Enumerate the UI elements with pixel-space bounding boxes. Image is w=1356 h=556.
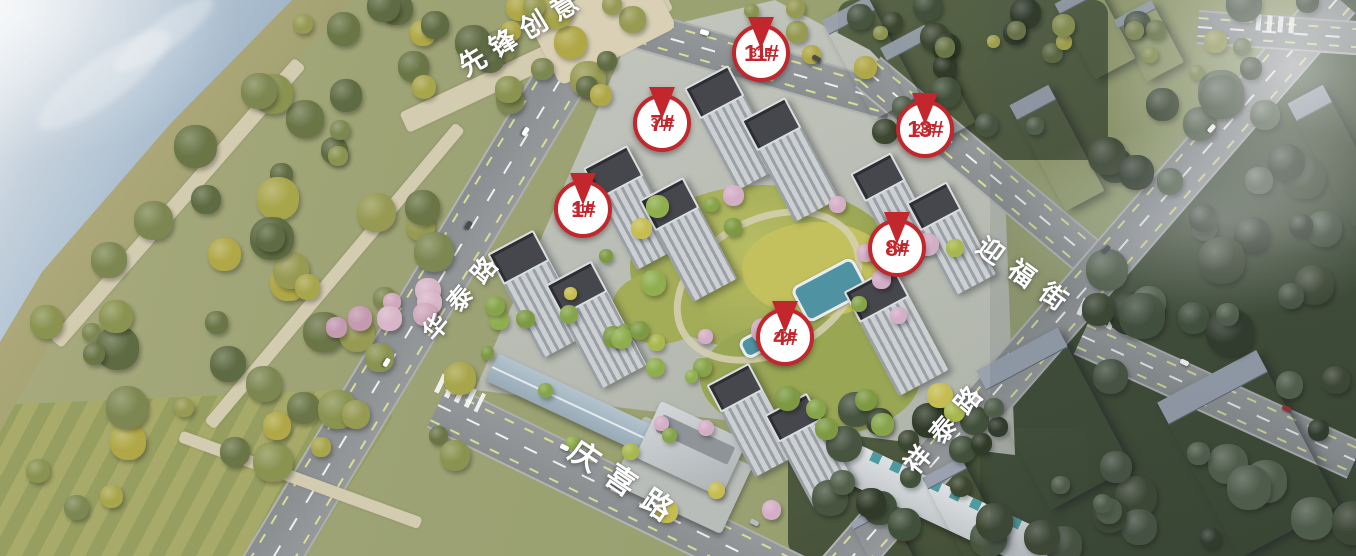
tree: [847, 4, 873, 30]
tree: [1240, 57, 1263, 80]
tree: [631, 218, 652, 239]
pin-pointer: [912, 93, 938, 125]
tree: [830, 470, 855, 495]
tree: [1146, 20, 1166, 40]
tree: [1198, 237, 1245, 284]
tree: [516, 310, 535, 329]
tree: [1119, 293, 1164, 338]
tree: [263, 412, 291, 440]
tree: [134, 201, 173, 240]
tree: [856, 488, 886, 518]
tree: [630, 321, 649, 340]
tree: [293, 14, 313, 34]
tree: [1289, 214, 1312, 237]
tree: [191, 185, 221, 215]
tree: [110, 424, 146, 460]
tree: [100, 485, 123, 508]
tree: [851, 296, 867, 312]
tree: [646, 195, 669, 218]
tree: [597, 51, 617, 71]
tree: [704, 197, 719, 212]
tree: [1227, 465, 1271, 509]
tree: [246, 366, 282, 402]
tree: [946, 239, 964, 257]
vehicle: [749, 518, 759, 526]
tree: [786, 21, 808, 43]
pin-pointer: [748, 17, 774, 49]
tree: [208, 238, 241, 271]
tree: [421, 11, 449, 39]
tree: [1007, 21, 1026, 40]
pin-pointer: [884, 212, 910, 244]
tree: [495, 76, 522, 103]
tree: [357, 193, 397, 233]
tree: [174, 125, 217, 168]
tree: [762, 500, 782, 520]
tree: [26, 459, 50, 483]
crosswalk: [1255, 14, 1296, 33]
tree: [1189, 204, 1217, 232]
tree: [241, 73, 277, 109]
tree: [724, 218, 742, 236]
tree: [641, 270, 667, 296]
tree: [440, 440, 470, 470]
city-tower: [1114, 0, 1184, 82]
tree: [935, 37, 956, 58]
tree: [330, 79, 362, 111]
tree: [1024, 520, 1059, 555]
tree: [619, 6, 646, 33]
tree: [253, 442, 293, 482]
tree: [560, 305, 578, 323]
tree: [698, 329, 713, 344]
tree: [685, 370, 698, 383]
tree: [444, 362, 476, 394]
tree: [611, 328, 632, 349]
tree: [531, 58, 553, 80]
tree: [1187, 442, 1210, 465]
tree: [1026, 117, 1044, 135]
tree: [220, 437, 250, 467]
tree: [174, 398, 193, 417]
tree: [599, 249, 613, 263]
tree: [815, 418, 837, 440]
tree: [348, 306, 372, 330]
tree: [1100, 451, 1132, 483]
tree: [806, 399, 826, 419]
tree: [1146, 88, 1179, 121]
tree: [210, 346, 247, 383]
tree: [342, 400, 371, 429]
tree: [1052, 14, 1075, 37]
tree: [1119, 155, 1154, 190]
tree: [564, 287, 577, 300]
tree: [327, 12, 361, 46]
tree: [1189, 65, 1204, 80]
tree: [326, 317, 346, 337]
tree: [377, 306, 402, 331]
tree: [976, 503, 1014, 541]
tree: [106, 386, 149, 429]
pin-pointer: [649, 87, 675, 119]
tree: [855, 389, 877, 411]
tree: [485, 296, 505, 316]
tree: [287, 392, 320, 425]
tree: [988, 417, 1008, 437]
tree: [888, 508, 921, 541]
city-tower-roof: [1055, 0, 1101, 14]
tree: [975, 113, 999, 137]
tree: [1322, 366, 1349, 393]
tree: [30, 305, 63, 338]
tree: [412, 75, 437, 100]
tree: [829, 196, 846, 213]
tree: [1278, 283, 1304, 309]
tree: [365, 343, 393, 371]
tree: [311, 437, 330, 456]
tree: [1142, 47, 1158, 63]
tree: [91, 242, 127, 278]
tree: [286, 100, 324, 138]
tree: [873, 26, 888, 41]
tree: [950, 476, 971, 497]
tree: [405, 190, 440, 225]
tree: [1250, 100, 1280, 130]
tree: [933, 55, 957, 79]
tree: [723, 185, 744, 206]
tree: [554, 26, 587, 59]
tree: [1178, 302, 1209, 333]
tree: [1233, 38, 1251, 56]
tree: [1157, 168, 1184, 195]
tree: [1204, 30, 1227, 53]
tree: [971, 433, 992, 454]
tree: [1308, 419, 1330, 441]
tree: [83, 343, 105, 365]
tree: [1051, 476, 1069, 494]
tree: [890, 307, 907, 324]
tree: [1200, 75, 1244, 119]
tree: [698, 420, 714, 436]
tree: [1200, 528, 1221, 549]
pin-pointer: [570, 173, 596, 205]
tree: [64, 495, 89, 520]
tree: [872, 119, 898, 145]
tree: [1276, 371, 1304, 399]
tree: [1082, 293, 1114, 325]
tree: [205, 311, 228, 334]
tree: [330, 120, 350, 140]
tree: [987, 35, 1000, 48]
tree: [648, 334, 665, 351]
tree: [256, 223, 286, 253]
tree: [1216, 303, 1239, 326]
tree: [99, 300, 133, 334]
tree: [1291, 497, 1334, 540]
tree: [590, 84, 612, 106]
tree: [1086, 249, 1129, 292]
tree: [871, 413, 894, 436]
tree: [481, 346, 495, 360]
tree: [1268, 144, 1306, 182]
tree: [295, 274, 320, 299]
residential-site-plan-map: 先锋创意华泰路迎福街祥泰路庆喜路 11# 31F 7# 31F 13# 28F …: [0, 0, 1356, 556]
pin-pointer: [772, 301, 798, 333]
tree: [1093, 359, 1128, 394]
tree: [257, 177, 300, 220]
tree: [775, 386, 801, 412]
tree: [414, 232, 454, 272]
tree: [1245, 167, 1272, 194]
tree: [328, 146, 348, 166]
